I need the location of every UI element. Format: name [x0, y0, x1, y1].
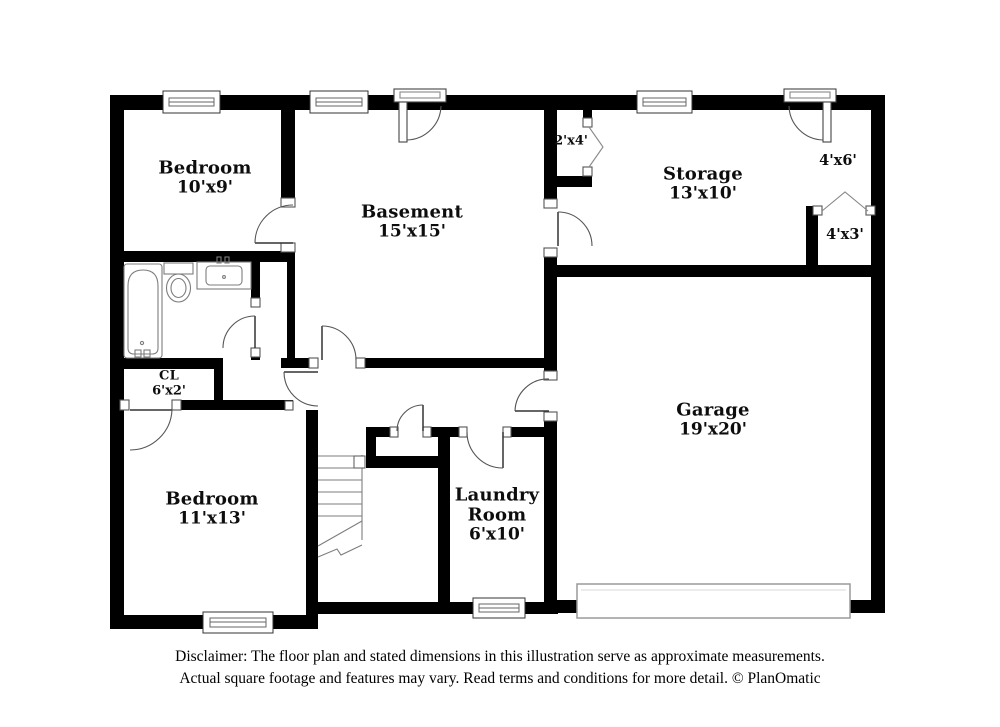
room-name: Laundry Room [449, 485, 545, 525]
room-dims: 19'x20' [676, 421, 749, 440]
door-hall-nook [284, 372, 318, 410]
room-name: Bedroom [165, 489, 258, 509]
room-label-entry-4x6: 4'x6' [819, 153, 857, 169]
floor-plan-drawing [0, 0, 1000, 727]
door-laundry [459, 427, 511, 468]
door-bedroom1 [255, 198, 295, 252]
door-bedroom2 [120, 400, 181, 450]
disclaimer-line-2: Actual square footage and features may v… [0, 668, 1000, 690]
room-dims: 4'x6' [819, 153, 857, 169]
bathtub [124, 264, 162, 358]
room-dims: 6'x10' [449, 526, 545, 545]
room-dims: 15'x15' [361, 223, 463, 242]
stairs [318, 455, 365, 557]
room-label-bedroom1: Bedroom 10'x9' [158, 158, 251, 197]
room-label-laundry: Laundry Room 6'x10' [449, 485, 545, 544]
window-basement [310, 91, 368, 113]
room-dims: 4'x3' [826, 227, 864, 243]
entry-door-basement [394, 89, 446, 142]
doors [120, 89, 875, 468]
room-label-closet-4x3: 4'x3' [826, 227, 864, 243]
wall-right [871, 95, 885, 613]
room-dims: 10'x9' [158, 179, 251, 198]
disclaimer-text: Disclaimer: The floor plan and stated di… [0, 646, 1000, 690]
floor-plan-page: Bedroom 10'x9' Basement 15'x15' 2'x4' St… [0, 0, 1000, 727]
room-label-storage: Storage 13'x10' [663, 164, 743, 203]
room-name: Basement [361, 202, 463, 222]
window-laundry [473, 598, 525, 618]
room-dims: 2'x4' [554, 135, 588, 150]
sink-vanity [197, 257, 251, 289]
room-dims: 11'x13' [165, 510, 258, 529]
toilet [164, 263, 193, 302]
door-garage [515, 371, 557, 421]
window-storage [637, 91, 692, 113]
room-label-closet-cl: CL 6'x2' [152, 369, 186, 398]
bifold-door-4x3 [813, 192, 875, 215]
room-name: Storage [663, 164, 743, 184]
entry-door-foyer [784, 89, 836, 142]
room-dims: 6'x2' [152, 384, 186, 399]
door-hall-closet [390, 405, 431, 437]
room-name: Bedroom [158, 158, 251, 178]
garage-door [577, 584, 850, 618]
room-label-basement: Basement 15'x15' [361, 202, 463, 241]
disclaimer-line-1: Disclaimer: The floor plan and stated di… [0, 646, 1000, 668]
room-label-closet-2x4: 2'x4' [554, 135, 588, 150]
door-storage [544, 199, 592, 257]
wall-garage-top [544, 265, 885, 277]
room-label-garage: Garage 19'x20' [676, 400, 749, 439]
door-basement-hall [309, 326, 365, 368]
room-label-bedroom2: Bedroom 11'x13' [165, 489, 258, 528]
room-dims: 13'x10' [663, 185, 743, 204]
bathroom-fixtures [124, 257, 251, 358]
window-bedroom2 [203, 612, 273, 633]
room-name: CL [152, 369, 186, 384]
door-bathroom [223, 298, 260, 357]
wall-top [110, 95, 885, 110]
window-bedroom1 [163, 91, 220, 113]
room-name: Garage [676, 400, 749, 420]
